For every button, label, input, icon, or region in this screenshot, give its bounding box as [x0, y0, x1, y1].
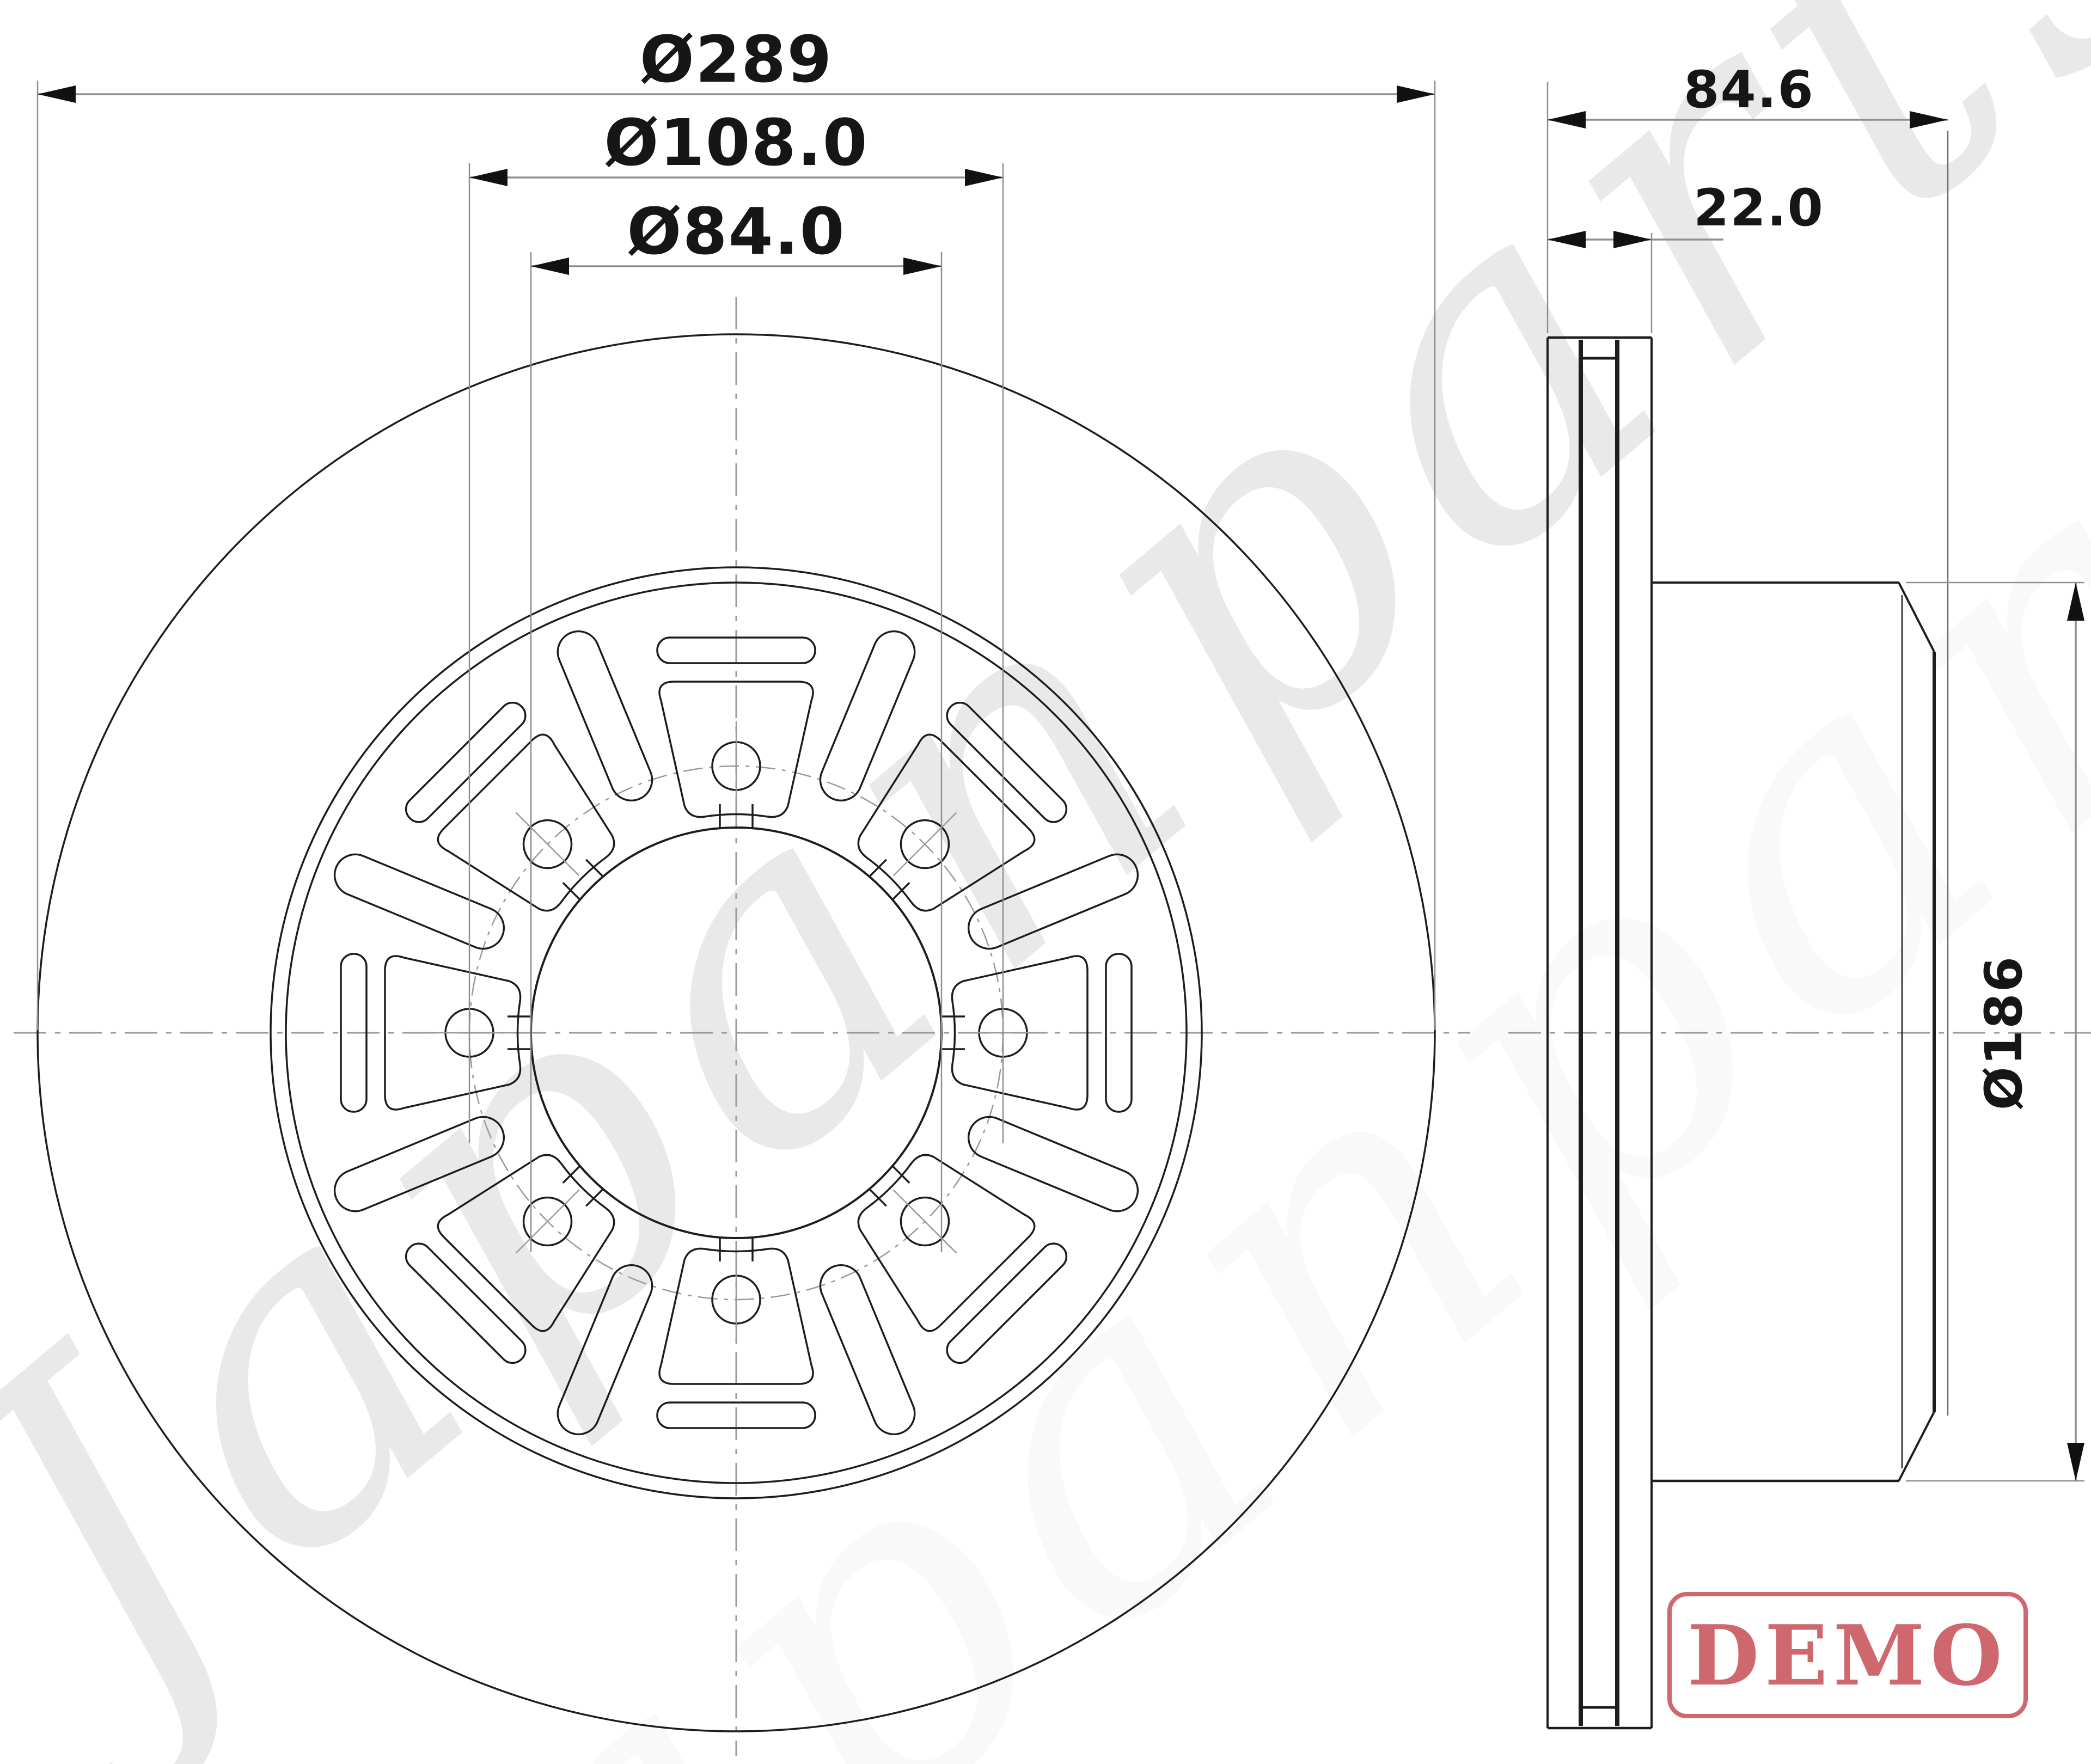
hub-diameter-label: Ø186: [1974, 955, 2034, 1110]
total-height-label: 84.6: [1684, 60, 1814, 120]
arrow-down-icon: [2067, 1443, 2084, 1481]
outer-diameter-label: Ø289: [640, 22, 833, 97]
demo-badge-label: DEMO: [1688, 1607, 2008, 1704]
arrow-right-icon: [965, 169, 1003, 186]
demo-badge: DEMO: [1667, 1592, 2028, 1718]
center-bore-label: Ø84.0: [627, 194, 845, 269]
arrow-left-icon: [531, 258, 569, 275]
arrow-right-icon: [903, 258, 941, 275]
technical-drawing-canvas: Japanparts: [0, 0, 2091, 1764]
arrow-left-icon: [38, 85, 76, 103]
drawing-sheet: Japanparts: [0, 0, 2091, 1764]
bolt-circle-label: Ø108.0: [604, 105, 869, 180]
arrow-left-icon: [469, 169, 508, 186]
disc-thickness-label: 22.0: [1693, 179, 1824, 238]
hub-bottom-chamfer: [1899, 1412, 1934, 1481]
